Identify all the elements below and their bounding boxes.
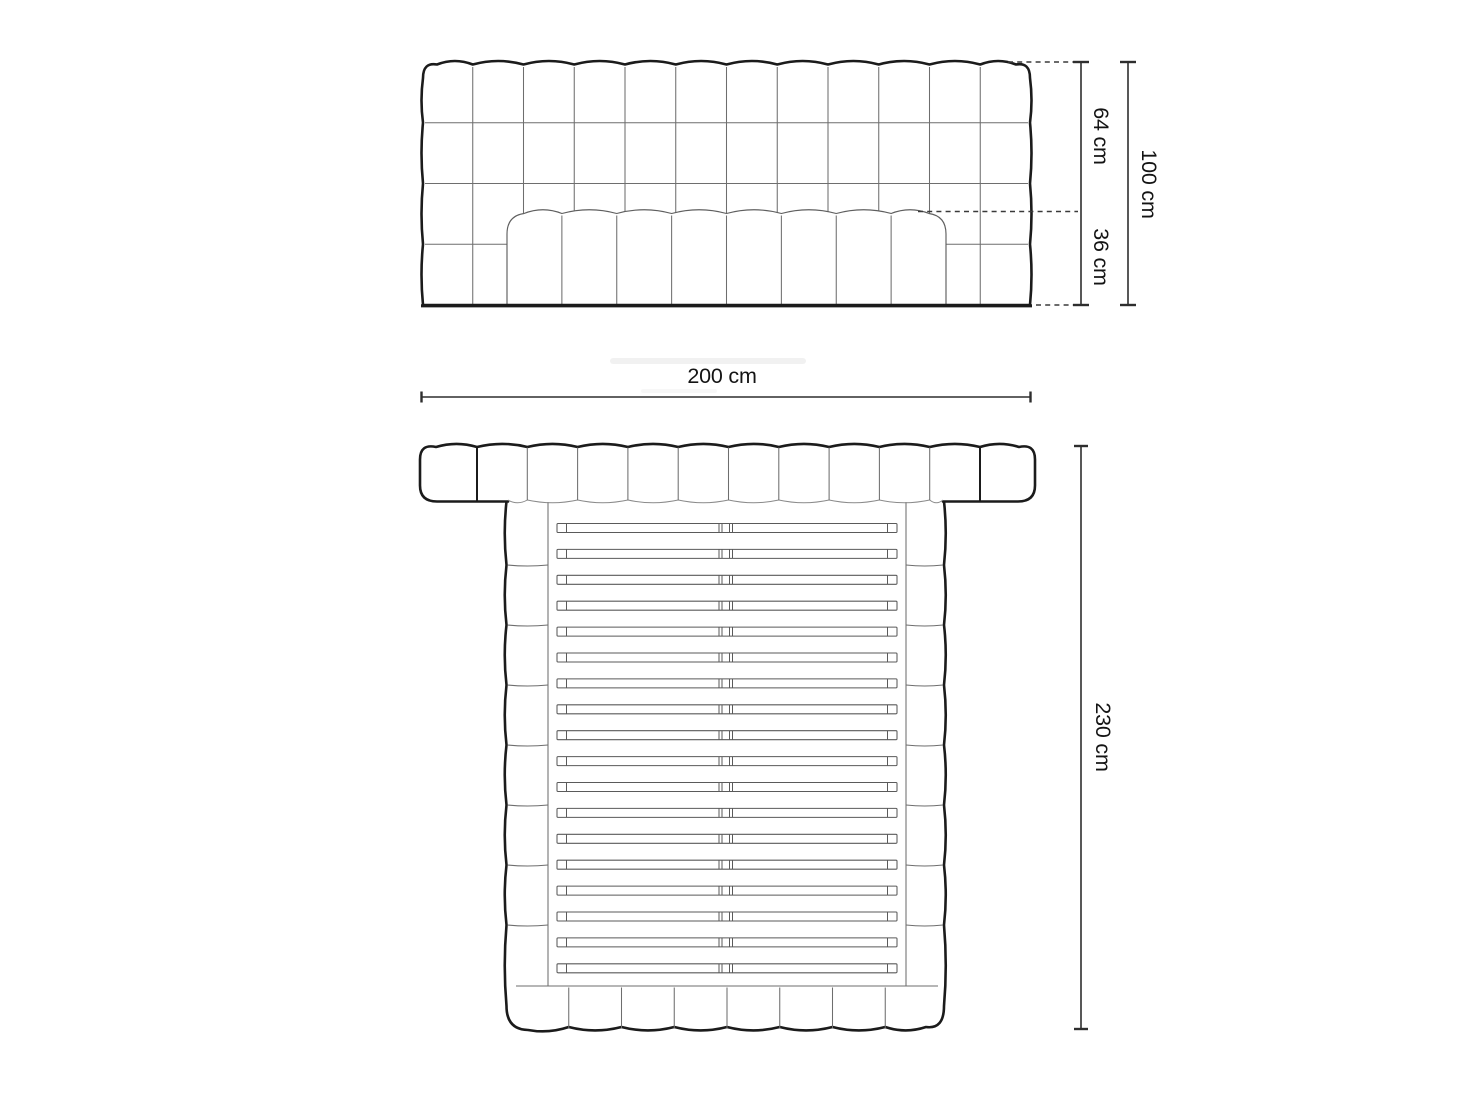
front-mattress [507,210,946,305]
slat [557,627,897,636]
slat [557,757,897,766]
slat [557,783,897,792]
slat [557,601,897,610]
dimension-label-64cm: 64 cm [1089,107,1113,165]
dimension-label-36cm: 36 cm [1089,228,1113,286]
slat [557,653,897,662]
top-view [420,444,1035,1031]
slat [557,938,897,947]
front-view [421,61,1032,306]
slat [557,912,897,921]
width-dimension: 200 cm [422,358,1031,403]
slat [557,860,897,869]
slat [557,886,897,895]
drawing-canvas: 64 cm 36 cm 100 cm 200 cm 230 cm [0,0,1466,1100]
length-dimension: 230 cm [1074,446,1115,1029]
dimension-label-230cm: 230 cm [1091,702,1115,771]
slat [557,808,897,817]
slat [557,834,897,843]
slat [557,964,897,973]
headboard-top-outline [420,444,1035,502]
dimension-label-200cm: 200 cm [687,364,756,388]
slat [557,679,897,688]
slat [557,575,897,584]
slat [557,705,897,714]
top-headboard [420,444,1035,503]
slat [557,731,897,740]
bed-technical-drawing: 64 cm 36 cm 100 cm 200 cm 230 cm [0,0,1466,1100]
slat [557,524,897,533]
dimension-label-100cm: 100 cm [1137,149,1161,218]
slat [557,549,897,558]
watermark-artifact [641,389,717,393]
